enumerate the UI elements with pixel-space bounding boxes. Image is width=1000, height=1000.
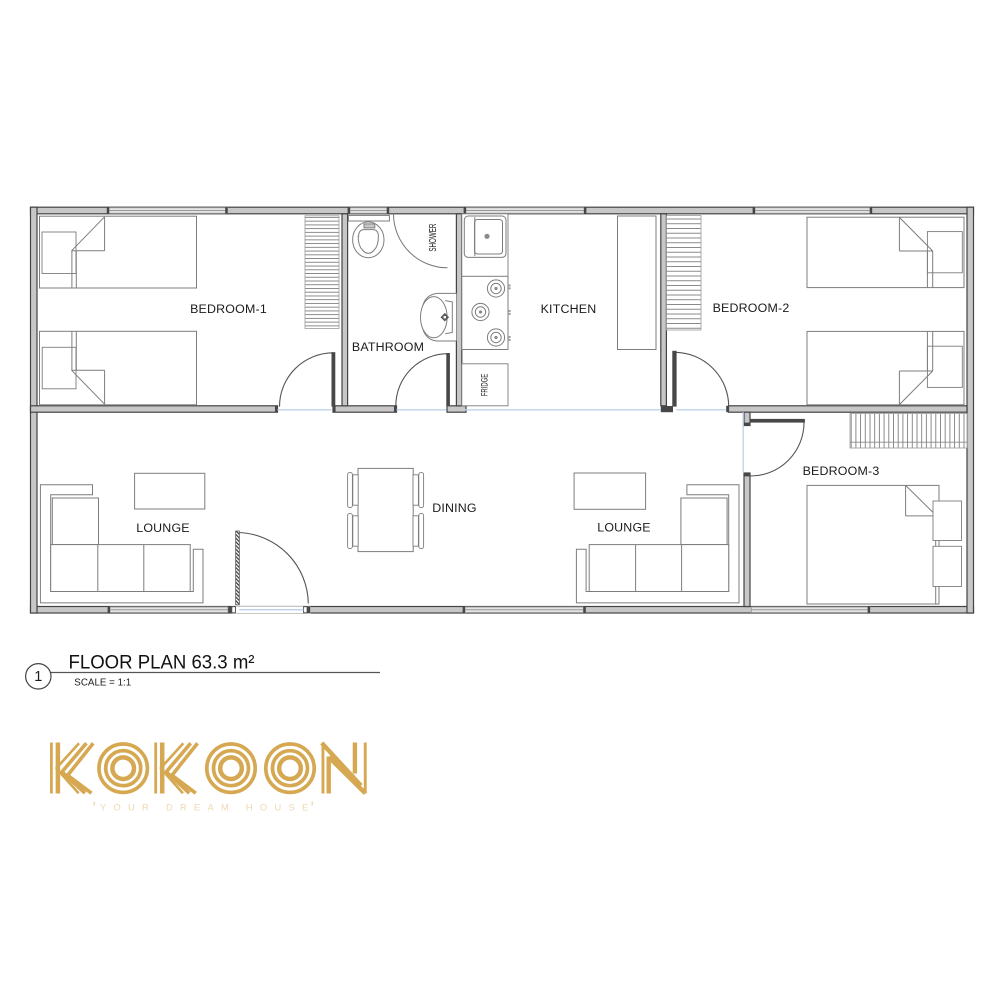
svg-text:1: 1	[34, 669, 42, 685]
svg-text:SCALE = 1:1: SCALE = 1:1	[74, 677, 131, 688]
svg-text:FRIDGE: FRIDGE	[480, 374, 490, 397]
svg-text:BATHROOM: BATHROOM	[352, 340, 424, 354]
svg-text:YOUR DREAM HOUSE: YOUR DREAM HOUSE	[100, 803, 315, 813]
svg-text:KITCHEN: KITCHEN	[541, 302, 597, 316]
svg-text:BEDROOM-3: BEDROOM-3	[803, 464, 880, 478]
svg-text:BEDROOM-1: BEDROOM-1	[190, 302, 267, 316]
svg-text:SHOWER: SHOWER	[428, 224, 439, 252]
svg-text:DINING: DINING	[432, 501, 477, 515]
svg-text:LOUNGE: LOUNGE	[136, 521, 190, 535]
svg-text:BEDROOM-2: BEDROOM-2	[713, 301, 790, 315]
svg-text:LOUNGE: LOUNGE	[597, 521, 651, 535]
svg-text:FLOOR PLAN 63.3 m²: FLOOR PLAN 63.3 m²	[69, 653, 255, 674]
